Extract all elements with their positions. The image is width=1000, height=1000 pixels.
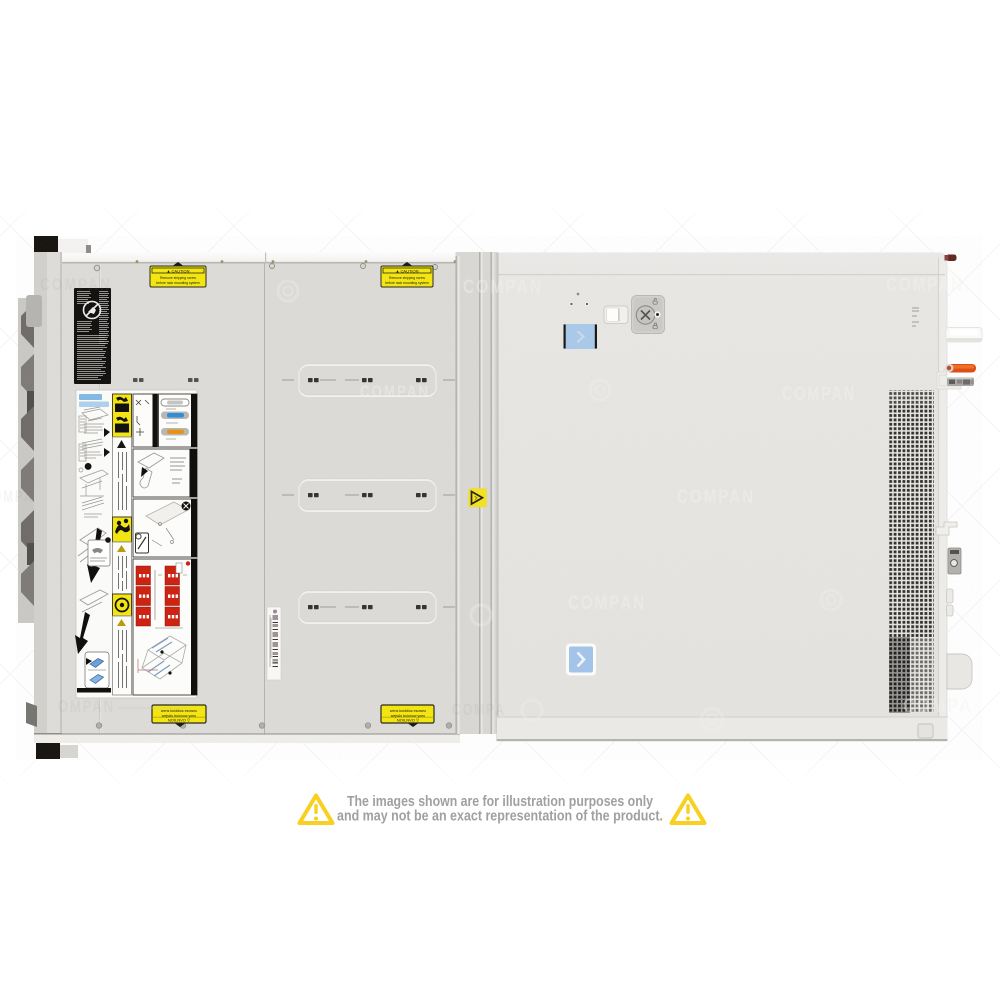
svg-text:wens buiddius esoweu: wens buiddius esoweu	[161, 709, 197, 713]
svg-text:COMPAN: COMPAN	[463, 277, 543, 298]
svg-text:Remove shipping screw: Remove shipping screw	[160, 276, 197, 280]
svg-text:wens buiddius esoweu: wens buiddius esoweu	[390, 709, 426, 713]
svg-text:before rack mounting system: before rack mounting system	[385, 281, 429, 285]
svg-text:and may not be an exact repres: and may not be an exact representation o…	[337, 809, 663, 825]
svg-text:NOILNVO ▽: NOILNVO ▽	[397, 718, 420, 723]
svg-text:COMPAN: COMPAN	[886, 275, 964, 296]
svg-text:COMPAN: COMPAN	[40, 276, 112, 294]
svg-text:COMPAN: COMPAN	[782, 384, 856, 405]
svg-text:NOILNVO ▽: NOILNVO ▽	[168, 718, 191, 723]
svg-text:COMPA: COMPA	[452, 701, 506, 719]
svg-text:Remove shipping screw: Remove shipping screw	[389, 276, 426, 280]
svg-text:COMPAN: COMPAN	[568, 593, 646, 614]
svg-text:before rack mounting system: before rack mounting system	[156, 281, 200, 285]
svg-text:▲ CAUTION: ▲ CAUTION	[166, 269, 189, 274]
svg-text:COMPA: COMPA	[903, 696, 973, 717]
svg-text:COMPAN: COMPAN	[360, 383, 430, 401]
svg-text:COMPAN: COMPAN	[677, 487, 755, 508]
svg-text:COMPA: COMPA	[0, 488, 34, 506]
svg-text:OMPAN: OMPAN	[58, 698, 115, 716]
svg-text:▲ CAUTION: ▲ CAUTION	[395, 269, 418, 274]
